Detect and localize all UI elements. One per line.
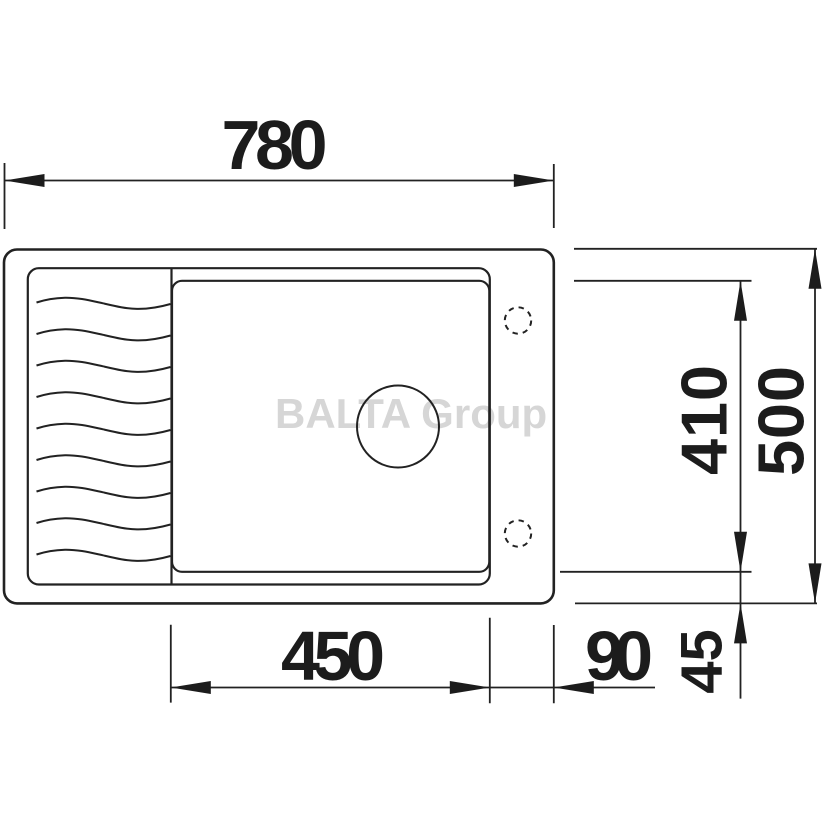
svg-text:90: 90 xyxy=(585,617,653,695)
svg-text:780: 780 xyxy=(222,106,328,184)
svg-text:45: 45 xyxy=(670,629,735,694)
svg-text:410: 410 xyxy=(668,365,741,475)
svg-text:450: 450 xyxy=(281,617,385,695)
svg-text:500: 500 xyxy=(745,366,818,476)
svg-text:BALTA Group: BALTA Group xyxy=(275,390,547,437)
